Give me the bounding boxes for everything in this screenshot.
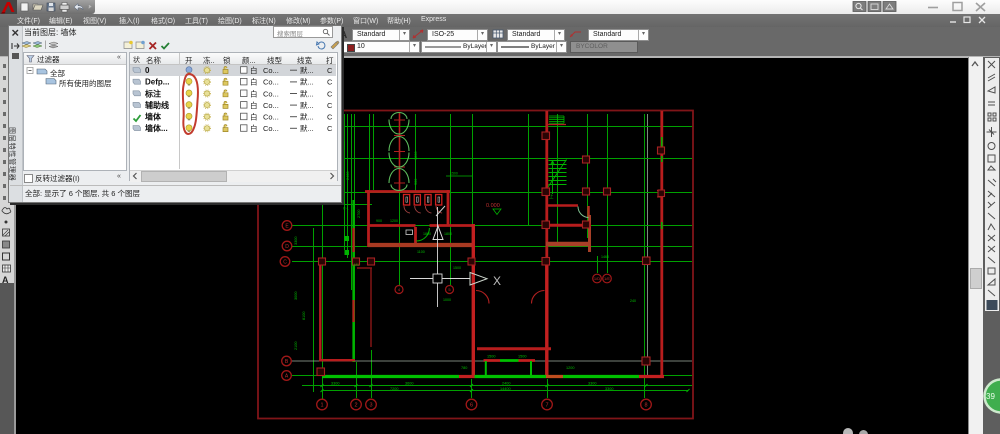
svg-text:3300: 3300 xyxy=(605,387,613,391)
svg-text:Co...: Co... xyxy=(263,124,279,133)
svg-text:1200: 1200 xyxy=(390,219,398,223)
svg-text:X: X xyxy=(493,274,501,288)
svg-text:3300: 3300 xyxy=(294,237,298,245)
svg-text:1800: 1800 xyxy=(414,152,418,160)
svg-text:墙体: 墙体 xyxy=(145,112,162,122)
svg-text:3300: 3300 xyxy=(588,382,596,386)
svg-text:1000: 1000 xyxy=(443,298,451,302)
svg-text:A: A xyxy=(2,275,9,283)
svg-text:2700: 2700 xyxy=(357,210,361,218)
svg-text:900: 900 xyxy=(414,179,418,185)
svg-text:Defp...: Defp... xyxy=(145,78,169,87)
svg-text:Co...: Co... xyxy=(263,78,279,87)
svg-text:白: 白 xyxy=(250,77,258,87)
svg-text:3: 3 xyxy=(369,403,372,409)
svg-text:14400: 14400 xyxy=(500,387,511,391)
svg-text:2100: 2100 xyxy=(294,342,298,350)
svg-text:2: 2 xyxy=(354,403,357,409)
svg-text:8100: 8100 xyxy=(302,312,306,320)
svg-text:4: 4 xyxy=(398,287,401,292)
svg-text:A: A xyxy=(285,374,289,380)
svg-text:6: 6 xyxy=(470,403,473,409)
svg-text:白: 白 xyxy=(250,88,258,98)
svg-text:白: 白 xyxy=(250,112,258,122)
svg-text:白: 白 xyxy=(250,65,258,75)
svg-text:0: 0 xyxy=(145,66,150,75)
svg-text:B: B xyxy=(285,359,289,365)
svg-text:墙体...: 墙体... xyxy=(145,123,168,133)
svg-text:C: C xyxy=(283,260,287,266)
svg-text:2400: 2400 xyxy=(346,172,350,180)
svg-text:1500: 1500 xyxy=(453,266,461,270)
svg-text:900: 900 xyxy=(376,219,382,223)
svg-text:C: C xyxy=(327,89,333,98)
svg-text:白: 白 xyxy=(250,100,258,110)
svg-text:5: 5 xyxy=(448,287,451,292)
svg-text:1500: 1500 xyxy=(450,172,458,176)
svg-text:C: C xyxy=(327,101,333,110)
svg-text:3600: 3600 xyxy=(405,382,413,386)
svg-text:C: C xyxy=(327,66,333,75)
svg-text:上: 上 xyxy=(549,193,554,199)
svg-text:Co...: Co... xyxy=(263,66,279,75)
svg-text:LM1: LM1 xyxy=(352,263,359,267)
svg-text:7: 7 xyxy=(545,403,548,409)
svg-text:1460: 1460 xyxy=(601,255,609,259)
svg-text:C: C xyxy=(327,113,333,122)
svg-text:7200: 7200 xyxy=(390,387,398,391)
svg-text:Co...: Co... xyxy=(263,101,279,110)
svg-text:默...: 默... xyxy=(300,77,314,87)
svg-text:D: D xyxy=(285,244,289,250)
svg-text:Co...: Co... xyxy=(263,113,279,122)
svg-text:C: C xyxy=(327,124,333,133)
svg-text:1500: 1500 xyxy=(518,355,526,359)
svg-text:1/D: 1/D xyxy=(594,276,600,281)
svg-text:C-1: C-1 xyxy=(343,207,349,211)
svg-text:E: E xyxy=(285,224,289,230)
svg-text:默...: 默... xyxy=(300,65,314,75)
svg-text:默...: 默... xyxy=(300,100,314,110)
svg-text:0.000: 0.000 xyxy=(486,203,500,209)
svg-text:1: 1 xyxy=(320,403,323,409)
svg-text:8: 8 xyxy=(644,403,647,409)
svg-text:3000: 3000 xyxy=(294,292,298,300)
svg-text:240: 240 xyxy=(630,299,636,303)
svg-text:3300: 3300 xyxy=(331,382,339,386)
svg-text:默...: 默... xyxy=(300,88,314,98)
svg-text:白: 白 xyxy=(250,123,258,133)
svg-text:2400: 2400 xyxy=(502,382,510,386)
svg-text:1500: 1500 xyxy=(487,355,495,359)
svg-text:默...: 默... xyxy=(300,112,314,122)
svg-text:Co...: Co... xyxy=(263,89,279,98)
svg-text:默...: 默... xyxy=(300,123,314,133)
svg-text:C: C xyxy=(327,78,333,87)
svg-text:780: 780 xyxy=(461,366,467,370)
svg-text:1800: 1800 xyxy=(423,232,431,236)
svg-text:标注: 标注 xyxy=(144,88,161,98)
svg-text:1800: 1800 xyxy=(444,232,452,236)
svg-text:1200: 1200 xyxy=(566,366,574,370)
svg-text:辅助线: 辅助线 xyxy=(145,100,169,110)
svg-text:1/E: 1/E xyxy=(604,276,610,281)
svg-text:1100: 1100 xyxy=(417,250,425,254)
svg-text:39: 39 xyxy=(986,392,995,401)
